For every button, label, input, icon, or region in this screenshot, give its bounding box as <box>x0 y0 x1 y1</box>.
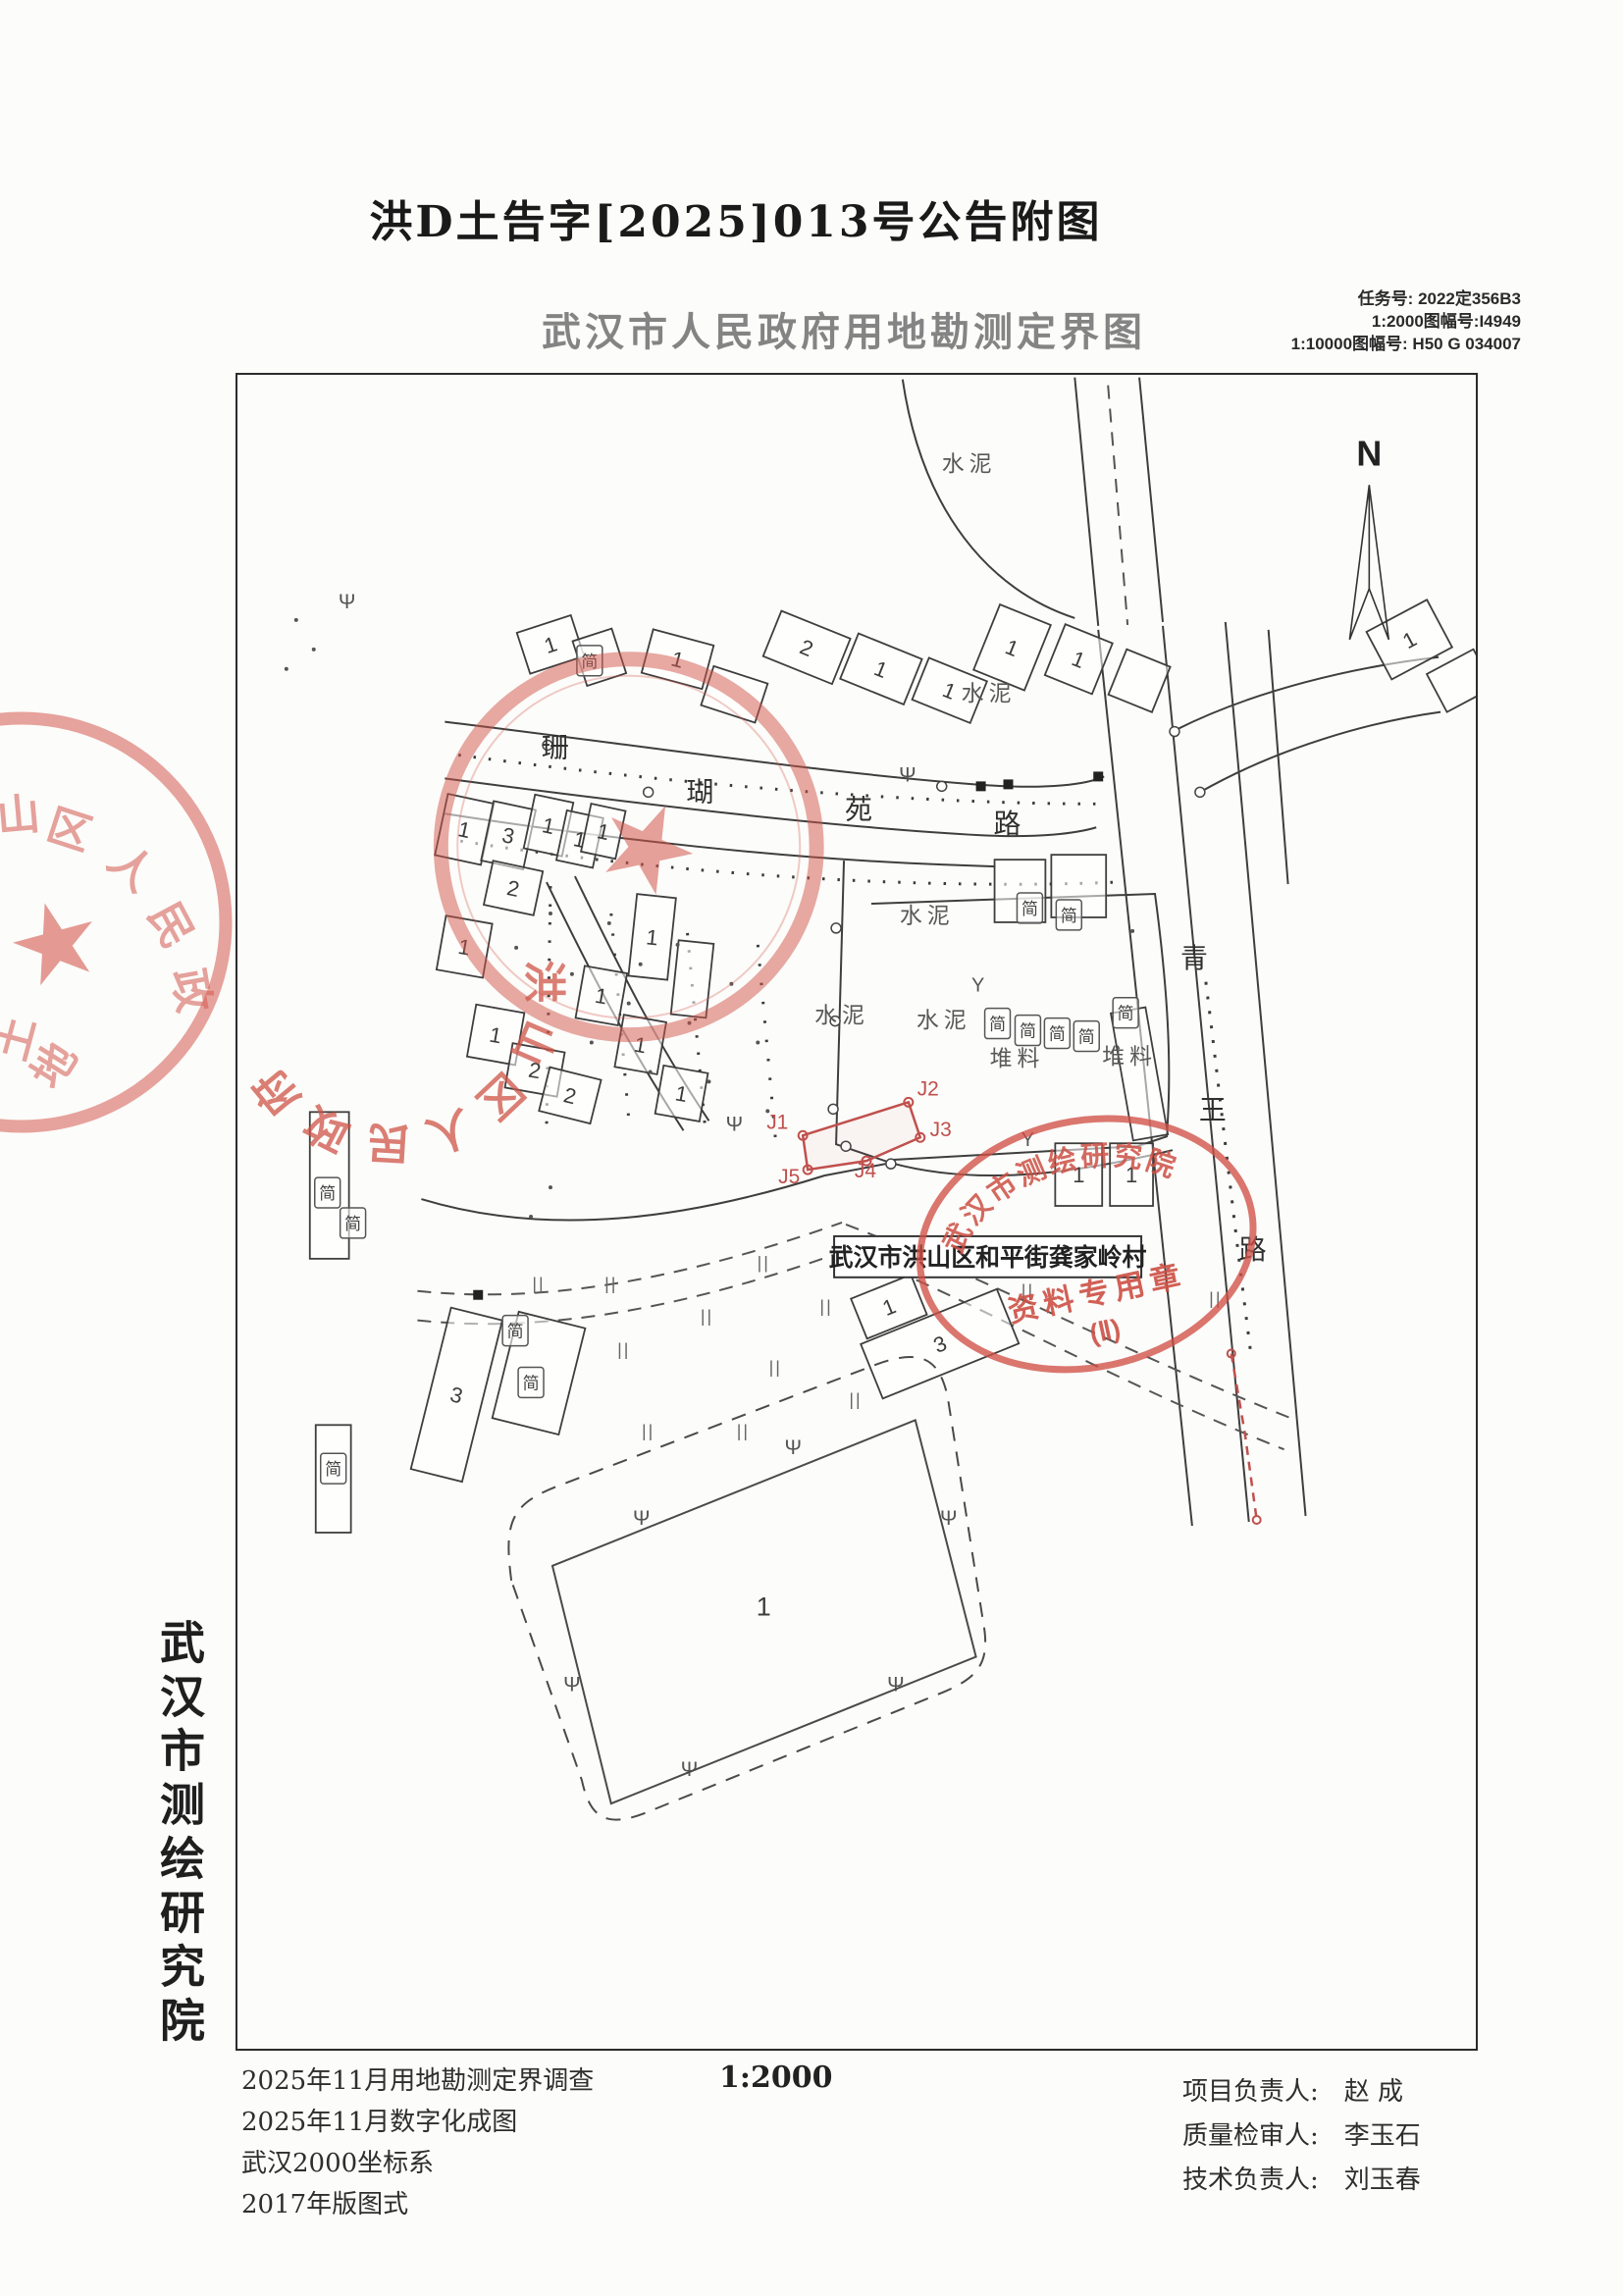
tree-symbol-icon: Y <box>971 975 984 997</box>
shed-jian-box: 简 <box>985 1009 1011 1039</box>
boundary-point-label: J1 <box>766 1111 788 1133</box>
survey-seal-line2: (Ⅱ) <box>1087 1314 1124 1349</box>
surface-type-label: 水泥 <box>814 1003 869 1028</box>
parcel-number-label: 1 <box>757 1592 771 1622</box>
survey-node-marker <box>831 923 841 933</box>
project-leader-label: 项目负责人: <box>1182 2077 1319 2107</box>
road-name-label: 瑚 <box>687 776 714 807</box>
surface-type-label: 水泥 <box>916 1008 971 1033</box>
surface-dot <box>676 943 680 947</box>
north-arrow: N <box>1349 434 1388 639</box>
shed-jian-box: 简 <box>1015 1016 1040 1046</box>
quality-reviewer-name: 李玉石 <box>1344 2121 1421 2151</box>
surface-dot <box>285 667 288 671</box>
agency-vertical-title: 武汉市测绘研究院 <box>147 1619 212 2051</box>
grass-pair-icon: || <box>849 1389 862 1409</box>
grass-symbol-icon: Ψ <box>726 1113 743 1135</box>
surface-dot <box>570 972 574 976</box>
road-name-label: 青 <box>1180 943 1208 973</box>
grass-pair-icon: || <box>701 1307 713 1327</box>
footer-left-block: 2025年11月用地勘测定界调查 2025年11月数字化成图 武汉2000坐标系… <box>241 2061 594 2225</box>
survey-node-marker <box>937 781 947 791</box>
surface-type-label: 水泥 <box>900 903 955 928</box>
shed-jian-label: 简 <box>1118 1005 1134 1023</box>
footer-digitize-date: 2025年11月数字化成图 <box>241 2102 594 2143</box>
shed-jian-label: 简 <box>325 1460 341 1479</box>
grass-pair-icon: || <box>758 1253 770 1273</box>
surface-type-label: 堆料 <box>1102 1043 1157 1069</box>
surface-dot <box>294 618 298 622</box>
surface-type-label: 堆料 <box>990 1045 1045 1070</box>
project-leader-name: 赵 成 <box>1344 2077 1403 2107</box>
map-building: 2 <box>539 1068 601 1124</box>
map-scale: 1:2000 <box>719 2061 832 2095</box>
svg-text:洪山区人民政府: 洪山区人民政府 <box>237 908 625 1231</box>
shed-jian-label: 简 <box>989 1016 1006 1034</box>
technical-leader-label: 技术负责人: <box>1182 2166 1319 2195</box>
grass-symbol-icon: Ψ <box>633 1507 650 1530</box>
survey-node-marker <box>1195 787 1205 797</box>
map-building: 1 <box>840 634 921 704</box>
grass-pair-icon: || <box>769 1357 782 1377</box>
shed-jian-label: 简 <box>319 1184 336 1203</box>
shed-jian-box: 简 <box>315 1177 340 1208</box>
monument-marker <box>1004 779 1014 789</box>
shed-jian-label: 简 <box>1078 1028 1095 1047</box>
project-leader-row: 项目负责人:赵 成 <box>1182 2070 1421 2114</box>
grass-pair-icon: || <box>617 1340 630 1360</box>
monument-marker <box>1093 771 1103 781</box>
surface-dot <box>627 1002 631 1006</box>
grass-pair-icon: || <box>604 1275 617 1294</box>
north-label: N <box>1356 434 1382 473</box>
surface-dot <box>707 1079 710 1083</box>
map-building: 2 <box>763 611 851 685</box>
shed-jian-label: 简 <box>1020 1022 1036 1041</box>
boundary-point-label: J3 <box>930 1119 952 1141</box>
survey-node-marker <box>886 1159 896 1169</box>
grass-symbol-icon: Ψ <box>563 1673 580 1696</box>
map-building: 1 <box>581 804 625 859</box>
left-seal-char: 山 <box>0 790 42 842</box>
grass-pair-icon: || <box>737 1421 750 1440</box>
map-building: 3 <box>411 1308 502 1482</box>
footer-right-block: 项目负责人:赵 成 质量检审人:李玉石 技术负责人:刘玉春 <box>1182 2070 1421 2204</box>
shed-jian-box: 简 <box>1017 893 1042 923</box>
left-seal-char: 人 <box>99 836 163 901</box>
parcel-label-box: 武汉市洪山区和平街龚家岭村 <box>829 1236 1147 1278</box>
monument-marker <box>473 1290 483 1300</box>
grass-pair-icon: || <box>532 1275 545 1294</box>
sheet-number-2000: 1:2000图幅号:I4949 <box>1291 310 1521 333</box>
page-title: 洪D土告字[2025]013号公告附图 <box>275 186 1197 249</box>
map-building: 2 <box>484 861 543 915</box>
footer-coordinate-system: 武汉2000坐标系 <box>241 2143 594 2184</box>
surface-type-label: 水泥 <box>962 681 1017 706</box>
map-building: 1 <box>628 894 675 979</box>
road-name-label: 珊 <box>542 732 569 762</box>
quality-reviewer-label: 质量检审人: <box>1182 2121 1319 2151</box>
surface-dot <box>549 1185 552 1189</box>
surface-type-label: 水泥 <box>942 450 997 476</box>
shed-jian-box: 简 <box>502 1316 528 1346</box>
map-building: 1 <box>973 604 1051 690</box>
shed-jian-box: 简 <box>1044 1018 1070 1049</box>
shed-jian-label: 简 <box>523 1374 540 1392</box>
road-name-label: 王 <box>1199 1094 1227 1124</box>
grass-pair-icon: || <box>642 1421 654 1440</box>
map-frame: 112111111311121122111111133简简简简简简简简简简简简简… <box>236 373 1478 2051</box>
shed-jian-box: 简 <box>1113 998 1138 1028</box>
government-seal-text: 洪山区人民政府 <box>237 908 625 1231</box>
surface-dot <box>649 1070 653 1073</box>
surface-dot <box>756 1041 759 1045</box>
technical-leader-name: 刘玉春 <box>1344 2166 1421 2195</box>
surface-dot <box>1130 929 1134 933</box>
map-building: 1 <box>1045 624 1113 694</box>
boundary-point-label: J2 <box>917 1077 939 1100</box>
survey-node-marker <box>1170 727 1179 737</box>
monument-marker <box>976 781 986 791</box>
shed-jian-label: 简 <box>1061 907 1077 925</box>
surface-dot <box>639 963 643 966</box>
quality-reviewer-row: 质量检审人:李玉石 <box>1182 2114 1421 2159</box>
sheet-number-10000: 1:10000图幅号: H50 G 034007 <box>1291 333 1521 355</box>
page-subtitle: 武汉市人民政府用地勘测定界图 <box>412 300 1276 357</box>
shed-jian-box: 简 <box>1073 1021 1099 1052</box>
shed-jian-label: 简 <box>1049 1025 1066 1044</box>
technical-leader-row: 技术负责人:刘玉春 <box>1182 2159 1421 2203</box>
survey-node-marker <box>828 1104 838 1114</box>
parcel-label-text: 武汉市洪山区和平街龚家岭村 <box>829 1243 1147 1272</box>
surface-dot <box>529 1215 533 1219</box>
shed-jian-box: 简 <box>1056 900 1081 930</box>
grass-symbol-icon: Ψ <box>784 1436 801 1459</box>
grass-symbol-icon: Ψ <box>339 591 355 613</box>
surface-dot <box>312 648 316 652</box>
boundary-point-label: J4 <box>855 1160 876 1182</box>
left-seal-star-icon <box>5 893 104 990</box>
building-number-label: 1 <box>645 924 659 950</box>
grass-pair-icon: || <box>819 1297 832 1317</box>
task-info-block: 任务号: 2022定356B3 1:2000图幅号:I4949 1:10000图… <box>1291 287 1521 355</box>
left-partial-seal: 山区人民政土地 <box>0 687 243 1158</box>
survey-node-marker <box>644 787 654 797</box>
grass-symbol-icon: Ψ <box>887 1673 904 1696</box>
shed-jian-label: 简 <box>507 1323 524 1341</box>
map-building <box>1109 650 1171 712</box>
task-number: 任务号: 2022定356B3 <box>1291 287 1521 310</box>
left-seal-char: 民 <box>139 895 202 956</box>
map-building: 1 <box>614 1015 666 1074</box>
surface-dot <box>607 921 611 925</box>
surface-dot <box>549 912 552 915</box>
buildings-layer: 112111111311121122111111133简简简简简简简简简简简简简 <box>310 600 1476 1533</box>
footer-survey-date: 2025年11月用地勘测定界调查 <box>241 2061 594 2102</box>
scanned-document-page: 洪D土告字[2025]013号公告附图 武汉市人民政府用地勘测定界图 任务号: … <box>0 0 1623 2296</box>
footer-symbology-edition: 2017年版图式 <box>241 2184 594 2225</box>
boundary-point-label: J5 <box>778 1166 800 1188</box>
map-building: 1 <box>655 1066 708 1122</box>
grass-symbol-icon: Ψ <box>899 763 916 786</box>
shed-jian-box: 简 <box>518 1367 544 1397</box>
surface-dot <box>590 1041 594 1045</box>
left-seal-char: 政 <box>163 965 218 1017</box>
road-name-label: 苑 <box>845 794 872 824</box>
shed-jian-label: 简 <box>1021 900 1038 918</box>
shed-jian-box: 简 <box>340 1208 366 1238</box>
shed-jian-label: 简 <box>344 1215 361 1233</box>
road-name-label: 路 <box>994 809 1021 839</box>
surface-dot <box>514 946 518 950</box>
left-seal-char: 区 <box>41 801 97 860</box>
shed-jian-box: 简 <box>321 1453 346 1484</box>
